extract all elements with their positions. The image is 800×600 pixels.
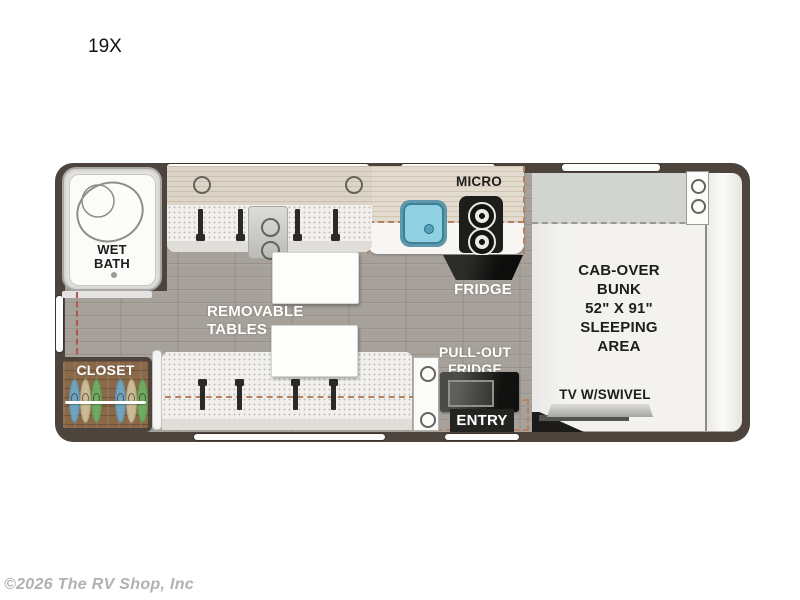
slide-marker-right	[523, 166, 525, 254]
bath-door-swing	[76, 292, 78, 354]
seat-belt-icon	[237, 380, 242, 410]
cupholder-icon	[420, 412, 436, 428]
cabinet-light-icon	[345, 176, 363, 194]
closet: CLOSET	[59, 357, 152, 432]
removable-tables-label: REMOVABLE TABLES	[207, 303, 347, 338]
sink-icon	[400, 200, 447, 247]
entry-door: ENTRY	[450, 409, 514, 432]
sink-drain-icon	[424, 224, 434, 234]
entry-step	[445, 434, 519, 440]
cab-front-cap	[705, 173, 742, 431]
burner-icon	[468, 228, 496, 256]
fridge-icon	[443, 255, 523, 280]
window-left	[56, 296, 63, 352]
cab-roof-area	[532, 173, 705, 224]
window-bottom	[194, 434, 385, 440]
cabinet-light-icon	[193, 176, 211, 194]
overhead-cabinet	[167, 166, 372, 210]
tv-label: TV W/SWIVEL	[547, 387, 663, 403]
vent-icon	[691, 199, 706, 214]
closet-label: CLOSET	[63, 362, 148, 379]
model-label: 19X	[88, 36, 122, 58]
cab-over-bunk-label: CAB-OVER BUNK 52" X 91" SLEEPING AREA	[534, 261, 704, 356]
entry-label: ENTRY	[450, 412, 514, 430]
seat-belt-icon	[293, 380, 298, 410]
cupholder-icon	[261, 218, 280, 237]
burner-icon	[468, 202, 496, 230]
sink-basin	[403, 203, 444, 244]
removable-table	[272, 252, 359, 304]
fridge-label: FRIDGE	[447, 281, 519, 299]
wet-bath: WET BATH	[62, 167, 162, 291]
pull-out-fridge-lid	[448, 380, 494, 407]
seat-belt-icon	[200, 380, 205, 410]
wet-bath-label: WET BATH	[64, 243, 160, 270]
bench-front	[162, 419, 412, 430]
micro-label: MICRO	[449, 174, 509, 190]
bench-end-panel	[152, 350, 162, 430]
copyright: ©2026 The RV Shop, Inc	[4, 576, 194, 594]
tv-icon	[547, 404, 653, 417]
seat-belt-icon	[295, 209, 300, 240]
seat-belt-icon	[331, 380, 336, 410]
seat-belt-icon	[198, 209, 203, 240]
vent-icon	[691, 179, 706, 194]
cab-panel	[686, 171, 709, 225]
pull-out-fridge-icon	[440, 372, 519, 412]
drain-icon	[111, 272, 117, 278]
seat-belt-icon	[333, 209, 338, 240]
window-top-3	[562, 164, 660, 171]
toilet-shower-icon	[72, 177, 150, 249]
closet-rod	[65, 401, 146, 404]
cooktop-icon	[459, 196, 503, 253]
floorplan: CAB-OVER BUNK 52" X 91" SLEEPING AREA TV…	[55, 163, 750, 442]
seat-belt-icon	[238, 209, 243, 240]
